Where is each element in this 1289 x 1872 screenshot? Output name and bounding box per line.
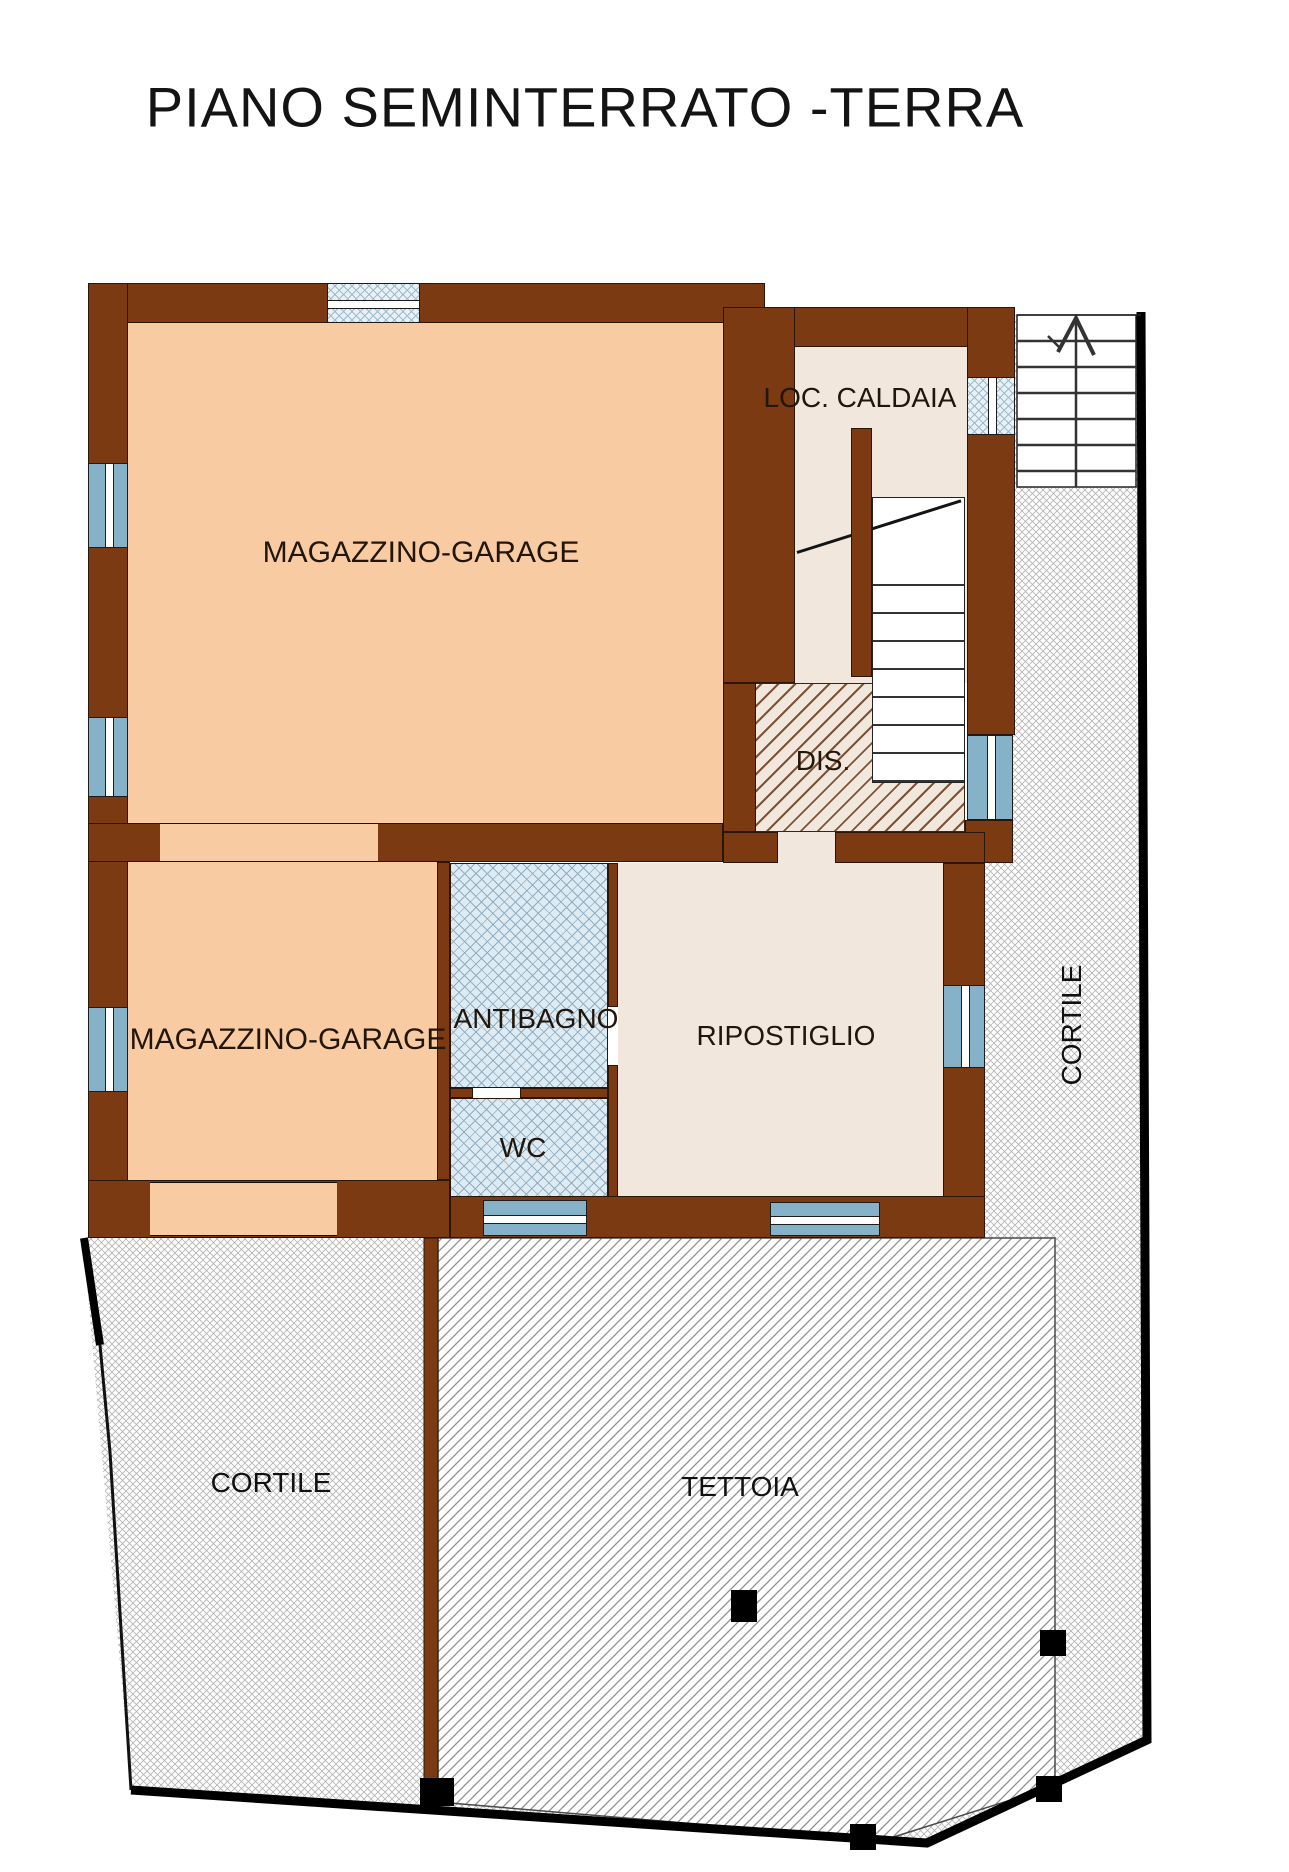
wall [723,307,795,683]
internal-stairs [872,497,965,783]
window-hatched [967,377,1015,435]
window-divider [988,378,997,434]
window [88,1007,128,1092]
wall [450,1088,473,1098]
wall [723,683,756,832]
label-wc: WC [500,1132,547,1164]
window-divider [771,1216,879,1225]
wall [723,832,778,863]
wall [88,283,765,323]
door-opening-dis-ripostiglio [778,832,835,863]
window [88,463,128,548]
window-divider [961,986,970,1067]
pillar [420,1778,454,1806]
garage-passage-opening [160,823,378,862]
label-antibagno: ANTIBAGNO [454,1003,619,1035]
label-cortile-bottom: CORTILE [211,1467,332,1499]
window-divider [105,718,114,796]
room-magazzino-garage-1 [128,323,723,823]
room-antibagno [450,863,608,1088]
window [943,985,985,1068]
window [483,1200,587,1236]
wall [835,832,985,863]
window-divider [105,1008,114,1091]
wall [520,1088,608,1098]
stair-wall-stub [851,428,872,677]
window-hatched [327,283,420,323]
wall [437,862,450,1180]
window-divider [328,300,419,309]
label-loc-caldaia: LOC. CALDAIA [764,382,957,414]
window [770,1202,880,1236]
wall [608,1065,618,1200]
cortile-tettoia-wall [424,1238,438,1790]
wall [967,307,1015,735]
label-tettoia: TETTOIA [681,1471,799,1503]
garage-door-opening [150,1182,337,1236]
external-stairs [1017,315,1136,487]
label-ripostiglio: RIPOSTIGLIO [697,1020,876,1052]
tettoia-area [438,1238,1055,1840]
window-divider [105,464,114,547]
window [967,735,1013,820]
label-magazzino-garage-2: MAGAZZINO-GARAGE [130,1023,447,1057]
window-divider [987,736,996,819]
label-dis: DIS. [796,745,850,777]
label-cortile-right: CORTILE [1056,965,1088,1086]
wall [608,863,618,1007]
label-magazzino-garage-1: MAGAZZINO-GARAGE [263,536,580,570]
floor-plan-page: PIANO SEMINTERRATO -TERRA MAGAZZINO-GARA… [0,0,1289,1872]
page-title: PIANO SEMINTERRATO -TERRA [146,75,1025,140]
room-magazzino-garage-2 [128,862,437,1180]
stair-treads [873,584,964,782]
window [88,717,128,797]
pillar [731,1590,757,1622]
pillar [1040,1630,1066,1656]
window-divider [484,1215,586,1224]
